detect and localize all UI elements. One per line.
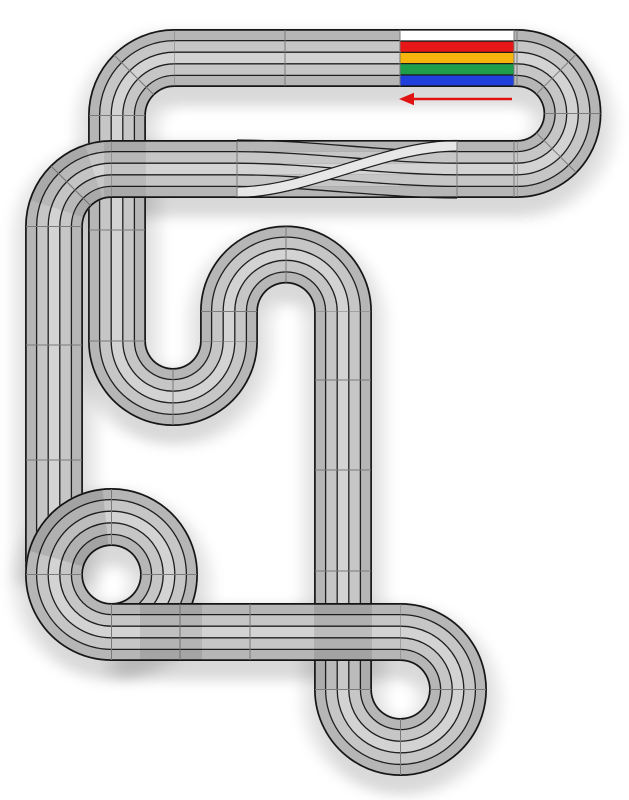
slot-car-track-diagram xyxy=(0,0,629,800)
segment-n-left-leg xyxy=(201,312,257,342)
start-lane-color-5 xyxy=(400,75,514,86)
start-lane-color-2 xyxy=(400,41,514,52)
start-finish-line xyxy=(400,30,514,86)
start-lane-color-4 xyxy=(400,64,514,75)
start-lane-color-3 xyxy=(400,52,514,63)
start-lane-color-1 xyxy=(400,30,514,41)
track-plan-page xyxy=(0,0,629,800)
lane-crossover-piece xyxy=(237,140,457,198)
